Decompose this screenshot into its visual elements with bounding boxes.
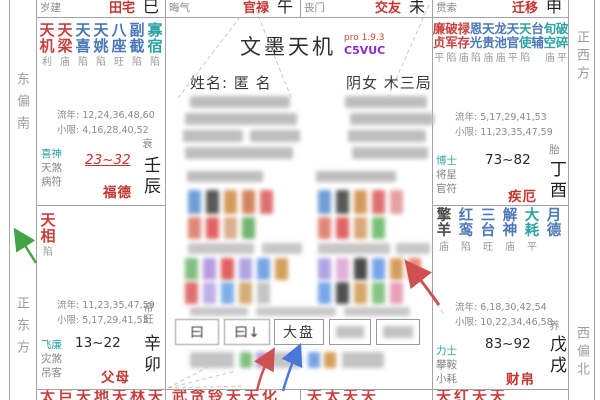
blurred-block [390, 258, 403, 280]
blurred-block [348, 130, 426, 142]
palace-god: 官符 [436, 182, 457, 196]
star: 天机利 [38, 22, 56, 68]
decade-range[interactable]: 83~92 [485, 336, 531, 352]
star: 寡宿陷 [146, 22, 164, 68]
star-list: 擎羊庙红鸾陷三台旺解神庙大耗平月德 [433, 209, 565, 253]
blurred-block [190, 96, 290, 108]
palace-yin-top-cut[interactable]: 太巨天地天林天 [40, 390, 163, 400]
chart-button-1[interactable]: 曰 [175, 319, 219, 345]
compass-west: 正西方 [572, 30, 591, 84]
blurred-block [206, 217, 219, 239]
blurred-block [188, 190, 201, 214]
palace-name: 财帛 [506, 368, 535, 388]
blurred-block [250, 130, 300, 142]
palace-god: 喜神 [41, 147, 62, 161]
palace-hai-top-cut[interactable]: 天红天天 [436, 390, 564, 400]
blurred-block [256, 307, 336, 316]
star: 天使陷 [519, 22, 531, 64]
palace-si-bottom[interactable]: 岁建 田宅 巳 [37, 0, 165, 17]
blurred-block [336, 258, 349, 280]
blurred-block [239, 258, 252, 280]
year-god-label: 岁建 [40, 0, 61, 15]
star-list: 天机利天梁庙天喜陷天姚陷八座旺副截陷寡宿陷 [38, 22, 164, 68]
app-title: 文墨天机 [240, 31, 336, 61]
life-stage: 胎 [547, 144, 562, 156]
blurred-block [336, 217, 349, 239]
grid-line [300, 389, 301, 400]
outer-border-right [594, 0, 595, 400]
palace-name: 疾厄 [508, 185, 537, 205]
stem-branch: 辛卯 [138, 334, 163, 376]
blurred-block [372, 258, 385, 280]
stem-branch: 丁酉 [544, 160, 569, 202]
star: 八座旺 [110, 22, 128, 68]
life-stage: 养 [547, 320, 562, 332]
blurred-block [221, 282, 234, 304]
year-ages: 流年: 5,17,29,41,53小限: 11,23,35,47,59 [455, 110, 553, 140]
star: 天贵庙 [482, 22, 494, 64]
blurred-block [318, 190, 331, 214]
palace-god: 将星 [436, 168, 457, 182]
blurred-block [275, 258, 288, 280]
blurred-block [203, 258, 216, 280]
palace-god: 攀鞍 [436, 358, 457, 372]
blurred-block [345, 96, 427, 108]
palace-god: 飞廉 [41, 338, 62, 352]
blurred-block [185, 113, 297, 125]
blurred-block [372, 217, 385, 239]
star: 龙池庙 [494, 22, 506, 64]
star-list: 廉贞平破军陷禄存庙恩光陷天贵庙龙池庙天官平天使陷台辅旬空庙破碎平 [433, 22, 568, 64]
decade-range[interactable]: 13~22 [75, 335, 121, 351]
blurred-block [187, 171, 263, 182]
blurred-block [239, 282, 252, 304]
palace-name: 田宅 [109, 0, 135, 16]
palace-god: 天煞 [41, 161, 62, 175]
branch-label: 未 [409, 0, 425, 17]
blurred-block [308, 352, 320, 368]
palace-name: 父母 [101, 366, 130, 386]
blurred-block [354, 258, 367, 280]
blurred-block [242, 190, 255, 214]
compass-east: 正东方 [12, 296, 31, 362]
blurred-block [190, 307, 248, 316]
god-list: 飞廉灾煞吊客 [41, 338, 62, 380]
branch-label: 巳 [143, 0, 159, 17]
blurred-block [316, 171, 396, 182]
palace-zi-top-cut[interactable]: 天太天天 [307, 390, 429, 400]
stem-branch: 戊戌 [544, 335, 569, 377]
year-ages: 流年: 6,18,30,42,54小限: 10,22,34,46,58 [455, 300, 553, 330]
year-ages: 流年: 12,24,36,48,60小限: 4,16,28,40,52 [57, 108, 155, 138]
palace-god: 小耗 [436, 372, 457, 386]
blurred-block [344, 307, 410, 316]
blurred-block [185, 282, 198, 304]
star: 天相陷 [39, 212, 57, 258]
dapan-button[interactable]: 大盘 [274, 319, 324, 345]
app-version: pro 1.9.3 [344, 33, 384, 43]
year-god-label: 贯索 [436, 0, 457, 15]
palace-name: 官禄 [243, 0, 269, 16]
palace-god: 吊客 [41, 366, 62, 380]
blue-arrow-bottom [283, 352, 297, 391]
blurred-block [354, 217, 367, 239]
blurred-block [318, 258, 331, 280]
palace-god: 病符 [41, 175, 62, 189]
life-stage: 衰 [140, 138, 155, 150]
palace-name: 福德 [103, 181, 132, 201]
person-gender-bureau: 阴女 木三局 [346, 72, 432, 93]
blurred-block [256, 352, 268, 368]
blurred-block [257, 282, 270, 304]
blurred-block [183, 130, 243, 142]
god-list: 喜神天煞病符 [41, 147, 62, 189]
blurred-block [188, 217, 201, 239]
blurred-block [203, 282, 216, 304]
blurred-block [224, 217, 237, 239]
blurred-block [224, 190, 237, 214]
palace-name: 交友 [375, 0, 401, 16]
decade-range[interactable]: 73~82 [485, 152, 531, 168]
blurred-block [221, 258, 234, 280]
blurred-block [272, 352, 302, 368]
palace-god: 力士 [436, 344, 457, 358]
blurred-block [242, 217, 255, 239]
blurred-block [260, 190, 273, 214]
palace-shen-bottom[interactable]: 贯索 迁移 申 [433, 0, 568, 17]
compass-west-north: 西偏北 [572, 326, 591, 380]
star: 红鸾陷 [455, 209, 477, 253]
star-list: 天相陷 [39, 212, 57, 258]
palace-wu-bottom[interactable]: 晦气 官禄 午 [166, 0, 299, 17]
star: 禄存庙 [458, 22, 470, 64]
star: 恩光陷 [470, 22, 482, 64]
blurred-block [318, 282, 331, 304]
blurred-block [318, 217, 331, 239]
star: 旬空庙 [544, 22, 556, 64]
branch-label: 午 [277, 0, 293, 17]
blurred-block [336, 190, 349, 214]
blurred-block [354, 282, 367, 304]
year-god-label: 丧门 [304, 0, 325, 15]
branch-label: 申 [546, 0, 562, 17]
chart-button-4[interactable] [329, 319, 371, 345]
year-god-label: 晦气 [169, 0, 190, 15]
blurred-block [240, 352, 252, 368]
palace-fumu[interactable]: 天相陷 流年: 11,23,35,47,59小限: 5,17,29,41,53 … [37, 206, 165, 389]
star: 台辅 [531, 22, 543, 64]
star: 破碎平 [556, 22, 568, 64]
star: 天官平 [507, 22, 519, 64]
star: 天梁庙 [56, 22, 74, 68]
blurred-block [185, 258, 198, 280]
grid-line [165, 0, 166, 400]
star: 三台旺 [477, 209, 499, 253]
blurred-block [190, 352, 234, 368]
app-code: C5VUC [344, 44, 385, 57]
blurred-block [324, 352, 336, 368]
blurred-label [336, 326, 364, 338]
blurred-block [390, 190, 403, 214]
red-arrow-bottom [257, 356, 270, 391]
palace-fude[interactable]: 天机利天梁庙天喜陷天姚陷八座旺副截陷寡宿陷 流年: 12,24,36,48,60… [37, 18, 165, 205]
god-list: 博士将星官符 [436, 154, 457, 196]
blurred-block [354, 190, 367, 214]
blurred-block [185, 147, 293, 159]
blurred-block [352, 147, 428, 159]
outer-border-left [9, 0, 10, 400]
star: 解神庙 [499, 209, 521, 253]
star: 擎羊庙 [433, 209, 455, 253]
green-arrow [19, 236, 36, 263]
blurred-block [336, 282, 349, 304]
decade-range[interactable]: 23~32 [85, 152, 131, 168]
blurred-block [372, 190, 385, 214]
blurred-block [390, 282, 403, 304]
star: 副截陷 [128, 22, 146, 68]
palace-wei-bottom[interactable]: 丧门 交友 未 [301, 0, 431, 17]
blurred-label [383, 326, 412, 338]
star: 廉贞平 [433, 22, 445, 64]
palace-chou-top-cut[interactable]: 武贪铃天天化 [172, 390, 298, 400]
star: 天姚陷 [92, 22, 110, 68]
compass-east-south: 东偏南 [12, 72, 31, 138]
life-stage: 帝旺 [141, 302, 156, 325]
person-name: 姓名: 匿 名 [190, 72, 272, 93]
star: 天喜陷 [74, 22, 92, 68]
blurred-block [318, 243, 390, 254]
blurred-block [372, 282, 385, 304]
stem-branch: 壬辰 [138, 156, 163, 198]
blurred-block [257, 258, 270, 280]
blurred-block [206, 190, 219, 214]
ziwei-chart: 东偏南 正东方 正西方 西偏北 岁建 田宅 巳 晦气 官禄 午 丧门 交友 未 … [0, 0, 600, 400]
blurred-block [342, 352, 384, 368]
palace-god: 灾煞 [41, 352, 62, 366]
palace-jie[interactable]: 廉贞平破军陷禄存庙恩光陷天贵庙龙池庙天官平天使陷台辅旬空庙破碎平 流年: 5,1… [433, 18, 568, 205]
blurred-block [350, 113, 434, 125]
star: 月德 [543, 209, 565, 253]
chart-button-5[interactable] [376, 319, 420, 345]
palace-god: 博士 [436, 154, 457, 168]
palace-caibo[interactable]: 擎羊庙红鸾陷三台旺解神庙大耗平月德 流年: 6,18,30,42,54小限: 1… [433, 206, 568, 389]
blurred-block [408, 258, 421, 280]
star: 破军陷 [445, 22, 457, 64]
palace-name: 迁移 [512, 0, 538, 16]
star: 大耗平 [521, 209, 543, 253]
blurred-block [262, 243, 302, 254]
blurred-block [396, 243, 430, 254]
chart-button-2[interactable]: 曰↓ [224, 319, 270, 345]
blurred-block [188, 243, 254, 254]
god-list: 力士攀鞍小耗 [436, 344, 457, 386]
